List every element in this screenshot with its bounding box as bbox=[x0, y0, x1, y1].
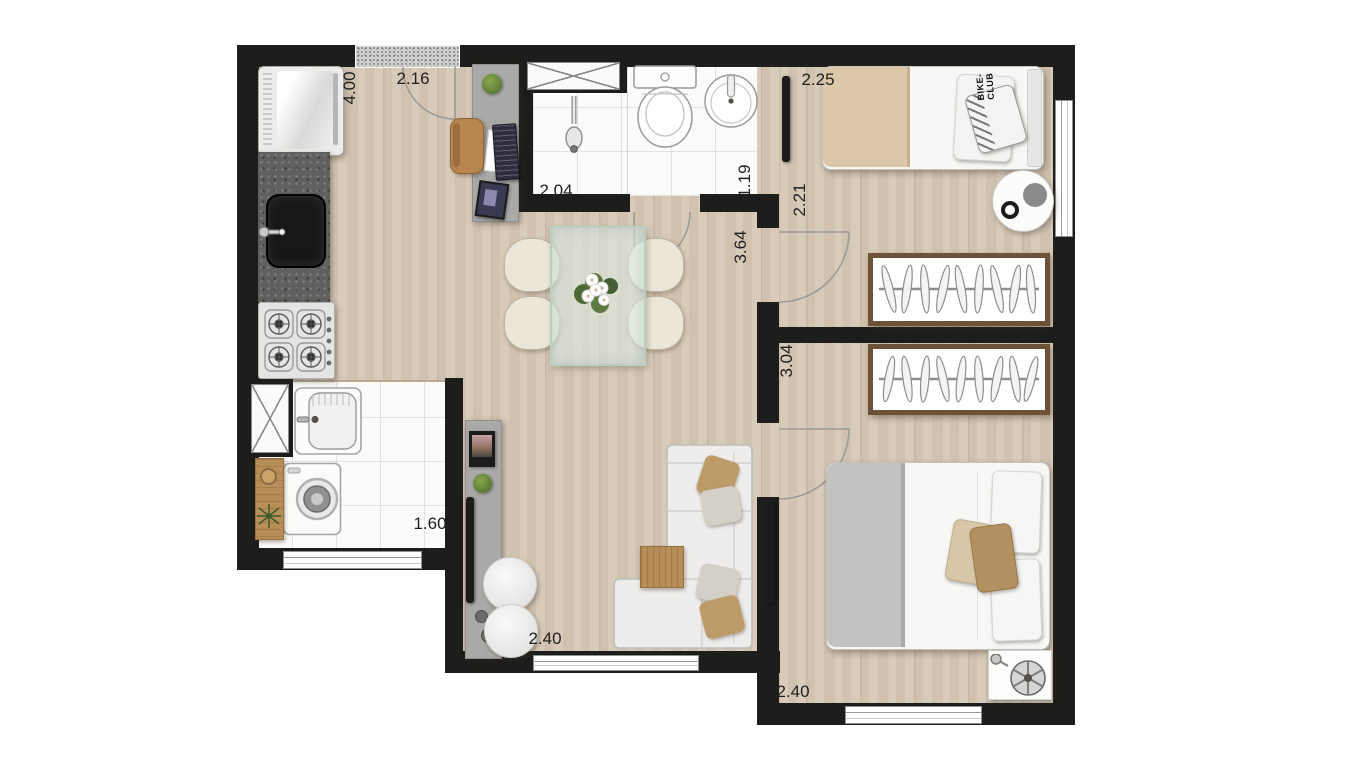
exterior-patch-center bbox=[445, 673, 757, 768]
kitchen-faucet-icon bbox=[256, 218, 288, 246]
bedroom2-double-bed bbox=[826, 462, 1050, 650]
dim-kitchen-depth: 4.00 bbox=[341, 66, 359, 110]
washing-machine-icon bbox=[282, 462, 342, 536]
dim-bedroom2-depth: 3.04 bbox=[778, 339, 796, 383]
desk-chair bbox=[450, 118, 484, 174]
bedroom1-door-swing bbox=[779, 228, 855, 304]
shaft-crossed-box-bathroom bbox=[527, 62, 620, 90]
table-lamp-icon bbox=[990, 654, 1016, 682]
dim-bedroom2-width: 2.40 bbox=[771, 683, 815, 701]
bedroom2-blanket bbox=[827, 463, 905, 647]
side-table-cup bbox=[1001, 201, 1019, 219]
desk-picture-frame bbox=[475, 180, 510, 220]
bedroom1-headboard bbox=[1027, 69, 1042, 167]
dim-bedroom1-width: 2.25 bbox=[796, 71, 840, 89]
dim-bathroom-width: 2.04 bbox=[534, 182, 578, 200]
laundry-window bbox=[283, 551, 422, 569]
rack-plant-icon bbox=[473, 474, 492, 493]
fridge-handle bbox=[333, 73, 338, 145]
bedroom2-wardrobe bbox=[868, 344, 1050, 415]
flower-centerpiece-icon bbox=[568, 262, 624, 318]
toilet-icon bbox=[630, 64, 702, 150]
refrigerator bbox=[258, 66, 344, 156]
pouf-1 bbox=[483, 557, 537, 611]
wall-bedrooms-2 bbox=[757, 302, 779, 423]
desk-chair-backrest bbox=[453, 123, 460, 167]
dim-living-width: 2.40 bbox=[523, 630, 567, 648]
wardrobe1-hangers-icon bbox=[873, 258, 1045, 321]
shower-icon bbox=[556, 94, 592, 164]
bedroom2-tv bbox=[766, 500, 775, 604]
pillow-print-text: BIKE-CLUB bbox=[973, 53, 996, 100]
rack-picture-art bbox=[472, 435, 492, 457]
bedroom1-wardrobe bbox=[868, 253, 1050, 326]
exterior-patch-left bbox=[150, 570, 445, 768]
entry-doormat bbox=[355, 45, 460, 68]
desk-picture-art bbox=[483, 189, 497, 207]
living-tv bbox=[466, 497, 474, 603]
shelf-plant-icon bbox=[255, 502, 283, 530]
wall-bedroom-divider bbox=[757, 327, 1053, 343]
fridge-vent bbox=[263, 73, 272, 147]
dim-laundry-width: 1.60 bbox=[408, 515, 452, 533]
bedroom1-tv bbox=[782, 76, 790, 162]
dim-kitchen-width: 2.16 bbox=[391, 70, 435, 88]
dim-bedroom1-depth: 2.21 bbox=[791, 178, 809, 222]
living-window bbox=[533, 655, 699, 671]
bedroom2-window bbox=[845, 706, 982, 724]
bedroom2-accent-pillow-brown bbox=[969, 522, 1020, 593]
shelf-bowl bbox=[260, 468, 277, 485]
dim-hall-depth: 3.64 bbox=[732, 225, 750, 269]
side-table-tray bbox=[1023, 183, 1047, 207]
desk-plant-icon bbox=[482, 74, 502, 94]
bathroom-sink-icon bbox=[702, 72, 760, 130]
shaft-crossed-box-laundry bbox=[251, 384, 289, 453]
dim-bathroom-depth: 1.19 bbox=[736, 159, 754, 203]
wardrobe2-hangers-icon bbox=[873, 349, 1045, 410]
sofa-wood-tray bbox=[640, 546, 684, 588]
floor-plan: BIKE-CLUB bbox=[0, 0, 1366, 768]
sofa-pillow-gray-1 bbox=[699, 485, 743, 527]
bedroom1-window bbox=[1055, 100, 1073, 237]
bedroom1-side-table bbox=[992, 170, 1054, 232]
stove-burners-icon bbox=[259, 303, 334, 378]
bedroom1-single-bed: BIKE-CLUB bbox=[822, 66, 1044, 170]
stove-cooktop bbox=[258, 302, 335, 379]
fridge-door-shine bbox=[277, 71, 333, 149]
laptop-icon bbox=[492, 123, 520, 181]
rack-picture-frame bbox=[469, 431, 495, 467]
laundry-sink-icon bbox=[293, 386, 363, 456]
